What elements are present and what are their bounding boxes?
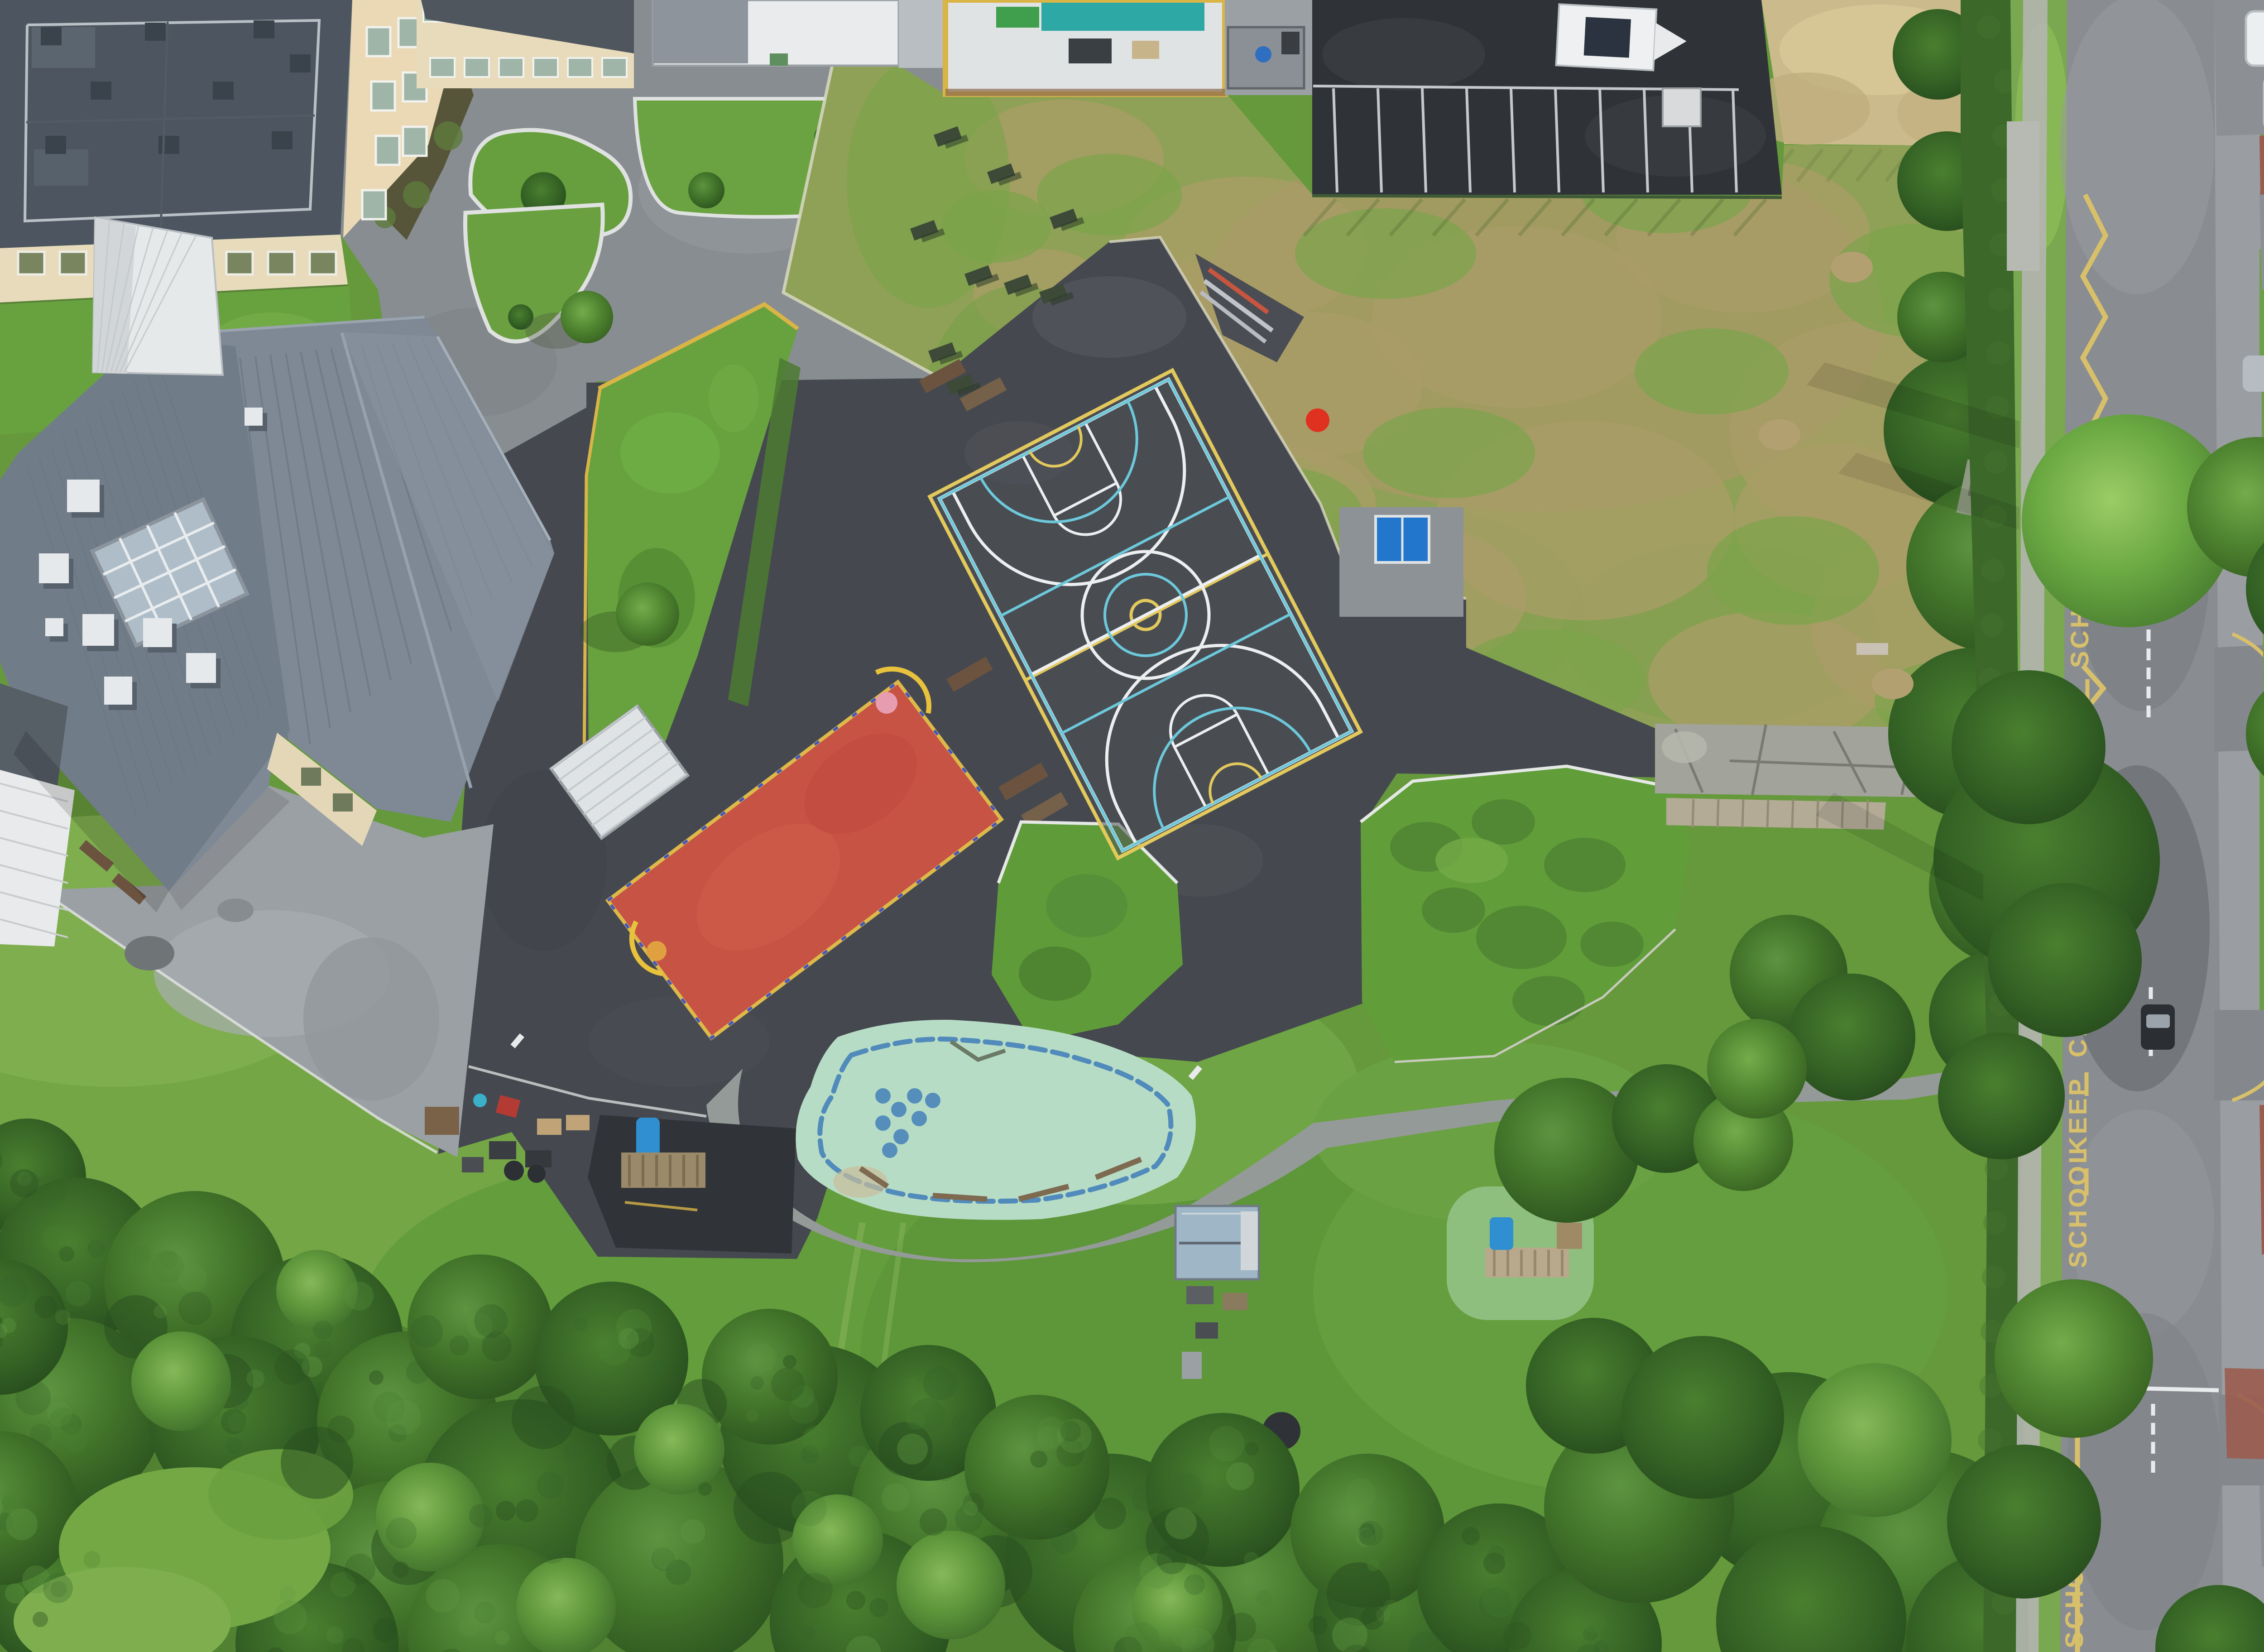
svg-text:SCHOOL: SCHOOL <box>2063 1146 2092 1268</box>
